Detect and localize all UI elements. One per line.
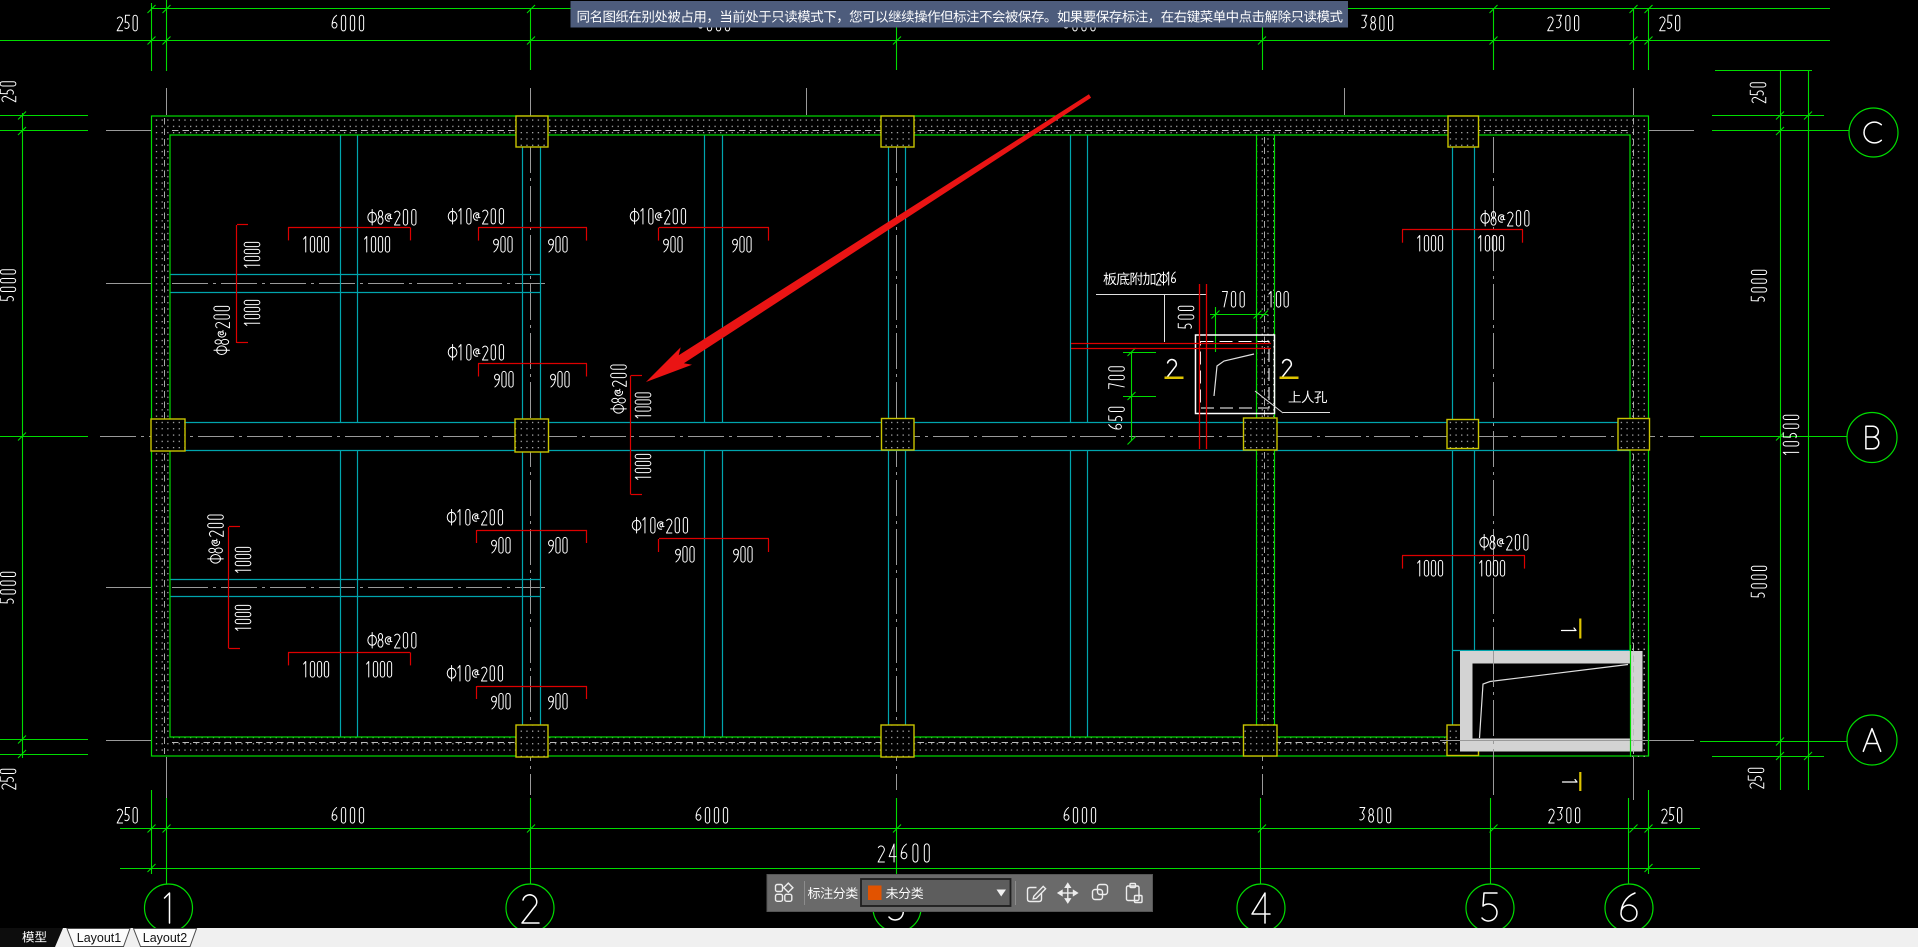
svg-text:Layout1: Layout1 [77,931,122,945]
svg-text:Layout2: Layout2 [143,931,188,945]
